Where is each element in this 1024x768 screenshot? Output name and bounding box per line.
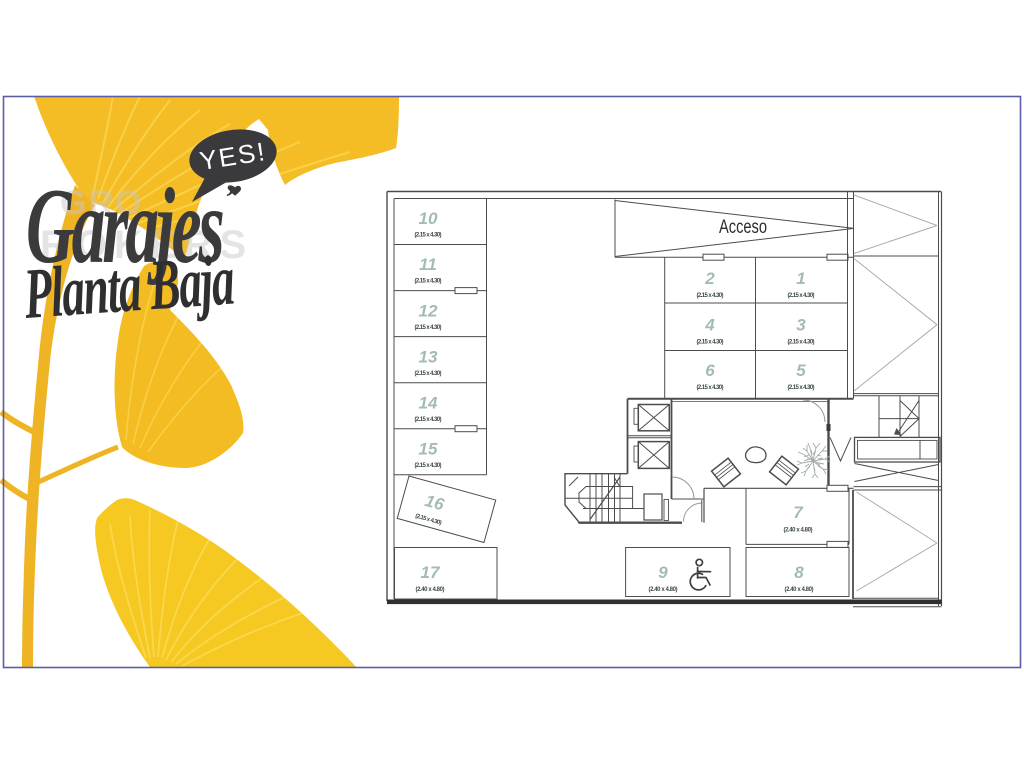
- svg-text:2: 2: [704, 269, 715, 288]
- svg-text:(2.15 x 4.30): (2.15 x 4.30): [415, 371, 442, 377]
- svg-text:7: 7: [793, 503, 804, 522]
- svg-text:(2.40 x 4.80): (2.40 x 4.80): [416, 587, 445, 593]
- svg-text:(2.15 x 4.30): (2.15 x 4.30): [788, 340, 815, 346]
- svg-text:(2.15 x 4.30): (2.15 x 4.30): [415, 279, 442, 285]
- svg-text:(2.40 x 4.80): (2.40 x 4.80): [649, 587, 678, 593]
- svg-text:Planta Baja: Planta Baja: [21, 240, 236, 335]
- svg-text:15: 15: [419, 440, 438, 459]
- svg-text:(2.15 x 4.30): (2.15 x 4.30): [788, 385, 815, 391]
- svg-text:5: 5: [796, 361, 806, 380]
- svg-text:17: 17: [421, 563, 441, 582]
- svg-text:(2.15 x 4.30): (2.15 x 4.30): [415, 233, 442, 239]
- svg-text:(2.15 x 4.30): (2.15 x 4.30): [697, 385, 724, 391]
- svg-text:(2.15 x 4.30): (2.15 x 4.30): [415, 463, 442, 469]
- svg-text:11: 11: [419, 255, 437, 274]
- svg-text:(2.15 x 4.30): (2.15 x 4.30): [415, 325, 442, 331]
- svg-text:(2.15 x 4.30): (2.15 x 4.30): [697, 340, 724, 346]
- svg-text:6: 6: [705, 361, 715, 380]
- svg-text:9: 9: [658, 563, 668, 582]
- svg-text:3: 3: [796, 316, 806, 335]
- svg-text:1: 1: [796, 269, 805, 288]
- svg-text:12: 12: [419, 302, 438, 321]
- svg-text:(2.40 x 4.80): (2.40 x 4.80): [784, 528, 813, 534]
- svg-text:10: 10: [419, 209, 438, 228]
- svg-text:13: 13: [419, 348, 438, 367]
- svg-text:(2.15 x 4.30): (2.15 x 4.30): [788, 293, 815, 299]
- svg-text:8: 8: [794, 563, 804, 582]
- svg-text:Acceso: Acceso: [719, 217, 767, 238]
- svg-text:4: 4: [704, 316, 715, 335]
- svg-text:(2.15 x 4.30): (2.15 x 4.30): [697, 293, 724, 299]
- svg-text:14: 14: [419, 394, 438, 413]
- svg-text:(2.15 x 4.30): (2.15 x 4.30): [415, 417, 442, 423]
- svg-text:(2.40 x 4.80): (2.40 x 4.80): [785, 587, 814, 593]
